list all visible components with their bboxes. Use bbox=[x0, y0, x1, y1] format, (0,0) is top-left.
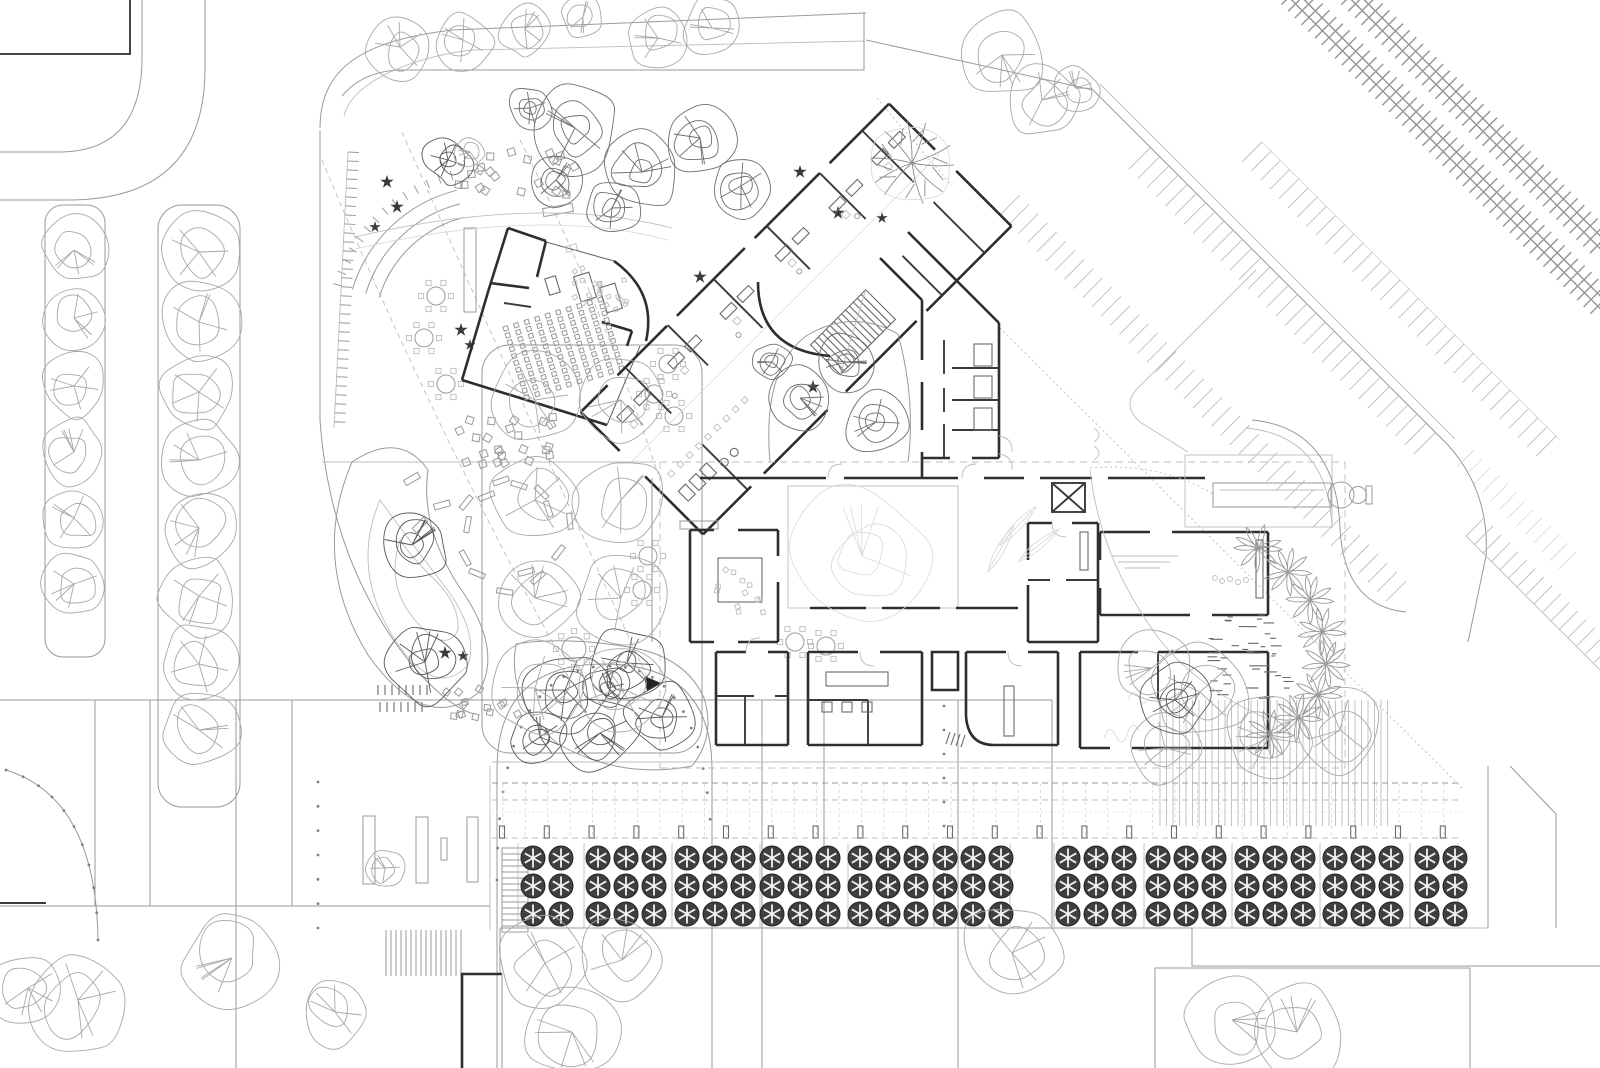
orchard-tree bbox=[549, 874, 573, 898]
orchard-tree bbox=[586, 874, 610, 898]
orchard-tree bbox=[989, 846, 1013, 870]
seat bbox=[558, 317, 563, 322]
seat bbox=[604, 317, 609, 322]
tree-symbol bbox=[43, 491, 103, 548]
orchard-tree bbox=[1202, 846, 1226, 870]
orchard-tree bbox=[549, 846, 573, 870]
tree-symbol bbox=[384, 513, 446, 578]
table-chair bbox=[436, 394, 441, 399]
table-chair bbox=[414, 348, 419, 353]
orchard-tree bbox=[586, 846, 610, 870]
tree-symbol bbox=[365, 17, 429, 81]
tree-symbol bbox=[1184, 976, 1275, 1064]
seat bbox=[556, 385, 561, 390]
orchard-tree bbox=[1323, 846, 1347, 870]
scattered-chair bbox=[563, 191, 570, 198]
orchard-tree bbox=[1146, 902, 1170, 926]
seat bbox=[503, 326, 508, 331]
bollard-dot bbox=[498, 817, 501, 820]
table-chair bbox=[451, 394, 456, 399]
hatched-band bbox=[386, 930, 461, 976]
seat bbox=[518, 374, 523, 379]
seat bbox=[564, 375, 569, 380]
tree-symbol bbox=[509, 88, 552, 130]
seat bbox=[532, 347, 537, 352]
tree-symbol bbox=[181, 914, 280, 1010]
orchard-tree bbox=[549, 902, 573, 926]
scattered-chair bbox=[723, 567, 729, 573]
table-chair bbox=[653, 540, 658, 545]
scattered-chair bbox=[572, 295, 577, 300]
bench bbox=[478, 491, 495, 501]
tree-strips-layer bbox=[45, 205, 702, 807]
orchard-tree bbox=[876, 874, 900, 898]
orchard-tree bbox=[521, 846, 545, 870]
scattered-chair bbox=[507, 148, 516, 157]
seat bbox=[606, 324, 611, 329]
tree-symbol bbox=[43, 351, 104, 419]
bollard-dot bbox=[5, 769, 8, 772]
orchard-tree bbox=[989, 874, 1013, 898]
tick-marks bbox=[1242, 142, 1556, 456]
seat bbox=[615, 352, 620, 357]
seat bbox=[535, 354, 540, 359]
seat bbox=[522, 388, 527, 393]
bollard-dot bbox=[651, 676, 654, 679]
plant-star bbox=[454, 323, 467, 336]
orchard-tree bbox=[1291, 846, 1315, 870]
bollard-dot bbox=[663, 685, 666, 688]
seat bbox=[608, 369, 613, 374]
round-table bbox=[786, 633, 804, 651]
tree-symbol bbox=[560, 699, 642, 772]
seat bbox=[537, 323, 542, 328]
orchard-tree bbox=[1084, 902, 1108, 926]
seat bbox=[530, 340, 535, 345]
tree-symbol bbox=[1286, 576, 1334, 624]
table-chair bbox=[630, 553, 635, 558]
bollard-dot bbox=[51, 796, 54, 799]
seat bbox=[560, 323, 565, 328]
seat bbox=[566, 382, 571, 387]
bench bbox=[552, 545, 566, 561]
seat bbox=[516, 329, 521, 334]
seat bbox=[570, 320, 575, 325]
table-chair bbox=[428, 381, 433, 386]
seat bbox=[566, 344, 571, 349]
round-table bbox=[633, 581, 651, 599]
orchard-tree bbox=[1379, 902, 1403, 926]
tree-symbol bbox=[1140, 662, 1211, 734]
orchard-tree bbox=[933, 846, 957, 870]
bollard-dot bbox=[696, 746, 699, 749]
seat bbox=[556, 310, 561, 315]
scattered-chair bbox=[586, 293, 591, 298]
table-chair bbox=[647, 600, 652, 605]
table-chair bbox=[429, 322, 434, 327]
scattered-chair bbox=[580, 266, 585, 271]
table-chair bbox=[418, 293, 423, 298]
orchard-tree bbox=[703, 874, 727, 898]
orchard-tree bbox=[816, 902, 840, 926]
seat bbox=[579, 310, 584, 315]
tree-symbol bbox=[511, 712, 567, 763]
rock-hatch bbox=[1207, 615, 1294, 698]
tree-symbol bbox=[604, 129, 674, 206]
orchard-tree bbox=[788, 874, 812, 898]
orchard-tree bbox=[675, 874, 699, 898]
seat bbox=[570, 358, 575, 363]
orchard-tree bbox=[848, 902, 872, 926]
seat bbox=[532, 384, 537, 389]
seat bbox=[514, 322, 519, 327]
seat bbox=[600, 341, 605, 346]
orchard-tree bbox=[816, 874, 840, 898]
railway-layer bbox=[1281, 0, 1600, 314]
orchard-tree bbox=[1351, 874, 1375, 898]
seat bbox=[606, 362, 611, 367]
rail-line bbox=[1295, 0, 1600, 305]
scattered-chair bbox=[519, 445, 528, 454]
table-chair bbox=[785, 626, 790, 631]
tree-symbol bbox=[162, 211, 240, 291]
tree-symbol bbox=[572, 463, 663, 543]
bollard-dot bbox=[682, 710, 685, 713]
orchard-tree bbox=[1084, 874, 1108, 898]
pergola-orchard-layer bbox=[492, 783, 1467, 928]
table-chair bbox=[571, 628, 576, 633]
seat bbox=[547, 320, 552, 325]
seat bbox=[589, 307, 594, 312]
scattered-chair bbox=[465, 416, 474, 425]
orchard-tree bbox=[1202, 874, 1226, 898]
seat bbox=[551, 334, 556, 339]
table-chair bbox=[831, 656, 836, 661]
seat bbox=[554, 378, 559, 383]
seat bbox=[589, 345, 594, 350]
scattered-chair bbox=[517, 187, 525, 195]
plant-star bbox=[390, 200, 403, 213]
tree-symbol bbox=[306, 980, 366, 1049]
tree-symbol bbox=[1302, 641, 1350, 688]
bollard-dot bbox=[317, 927, 320, 930]
tree-symbol bbox=[623, 681, 695, 750]
tree-symbol bbox=[870, 121, 954, 203]
tree-symbol bbox=[159, 356, 232, 430]
orchard-tree bbox=[876, 902, 900, 926]
seat bbox=[602, 348, 607, 353]
tree-symbol bbox=[525, 987, 622, 1068]
tree-symbol bbox=[1265, 549, 1312, 596]
tree-symbol bbox=[422, 138, 474, 186]
seat bbox=[535, 391, 540, 396]
bollard-dot bbox=[943, 825, 946, 828]
table-chair bbox=[436, 368, 441, 373]
seat bbox=[553, 340, 558, 345]
orchard-tree bbox=[1235, 846, 1259, 870]
table-chair bbox=[838, 643, 843, 648]
tree-symbol bbox=[683, 0, 739, 54]
parking-stalls-layer bbox=[1000, 142, 1600, 670]
tick-marks bbox=[1129, 148, 1435, 454]
bollard-dot bbox=[37, 784, 40, 787]
plant-star bbox=[380, 175, 393, 188]
orchard-tree bbox=[1174, 902, 1198, 926]
seat bbox=[528, 371, 533, 376]
bollard-dot bbox=[63, 809, 66, 812]
scattered-chair bbox=[597, 291, 602, 296]
seat bbox=[526, 364, 531, 369]
orchard-tree bbox=[1235, 874, 1259, 898]
tree-symbol bbox=[499, 561, 581, 637]
scattered-chair bbox=[747, 583, 752, 588]
seat bbox=[591, 351, 596, 356]
table-chair bbox=[448, 293, 453, 298]
seat bbox=[509, 346, 514, 351]
seat bbox=[518, 336, 523, 341]
table-chair bbox=[686, 413, 691, 418]
orchard-tree bbox=[586, 902, 610, 926]
orchard-tree bbox=[1056, 846, 1080, 870]
tick-marks bbox=[1457, 450, 1576, 569]
bollard-dot bbox=[943, 777, 946, 780]
orchard-tree bbox=[1263, 902, 1287, 926]
table-chair bbox=[429, 348, 434, 353]
tree-symbol bbox=[365, 850, 405, 886]
tree-symbol bbox=[0, 958, 60, 1024]
orchard-tree bbox=[1379, 874, 1403, 898]
table-chair bbox=[673, 348, 678, 353]
seat bbox=[596, 365, 601, 370]
table-chair bbox=[632, 600, 637, 605]
orchard-tree bbox=[521, 874, 545, 898]
orchard-tree bbox=[1174, 846, 1198, 870]
seat bbox=[572, 365, 577, 370]
orchard-tree bbox=[1235, 902, 1259, 926]
tree-symbol bbox=[789, 484, 932, 621]
bollard-dot bbox=[317, 805, 320, 808]
bollard-dot bbox=[87, 864, 90, 867]
seat bbox=[581, 355, 586, 360]
seat bbox=[556, 347, 561, 352]
bollard-dot bbox=[550, 684, 553, 687]
tree-symbol bbox=[490, 456, 579, 535]
orchard-tree bbox=[1443, 874, 1467, 898]
orchard-tree bbox=[1112, 874, 1136, 898]
seat bbox=[562, 330, 567, 335]
orchard-tree bbox=[731, 874, 755, 898]
tick-marks bbox=[380, 702, 422, 712]
table-chair bbox=[658, 348, 663, 353]
seat bbox=[577, 341, 582, 346]
table-chair bbox=[589, 646, 594, 651]
scattered-chair bbox=[622, 278, 627, 283]
site-plan-canvas bbox=[0, 0, 1600, 1068]
seat bbox=[541, 337, 546, 342]
orchard-tree bbox=[642, 902, 666, 926]
bench bbox=[469, 568, 486, 579]
group bbox=[1014, 528, 1064, 563]
tick-marks bbox=[378, 685, 427, 695]
seat bbox=[537, 361, 542, 366]
tree-symbol bbox=[43, 417, 102, 487]
bollard-dot bbox=[73, 825, 76, 828]
seat bbox=[551, 371, 556, 376]
table-chair bbox=[831, 630, 836, 635]
bollard-dot bbox=[609, 665, 612, 668]
table-chair bbox=[664, 400, 669, 405]
table-chair bbox=[654, 587, 659, 592]
seat bbox=[583, 362, 588, 367]
terrace-arc bbox=[352, 190, 456, 289]
table-chair bbox=[559, 659, 564, 664]
round-table bbox=[427, 287, 445, 305]
seat bbox=[562, 368, 567, 373]
tree-symbol bbox=[582, 918, 662, 1002]
orchard-tree bbox=[788, 846, 812, 870]
rail-line bbox=[1289, 0, 1600, 311]
seat bbox=[583, 324, 588, 329]
seat bbox=[539, 367, 544, 372]
orchard-tree bbox=[1323, 902, 1347, 926]
scattered-chair bbox=[598, 281, 602, 285]
table-chair bbox=[800, 652, 805, 657]
bollard-dot bbox=[22, 775, 25, 778]
scattered-chair bbox=[731, 570, 736, 575]
seat bbox=[549, 364, 554, 369]
orchard-tree bbox=[760, 846, 784, 870]
scattered-chair bbox=[442, 688, 450, 696]
bollard-dot bbox=[496, 847, 499, 850]
orchard-tree bbox=[1202, 902, 1226, 926]
tree-symbol bbox=[532, 156, 583, 207]
plant-star bbox=[693, 270, 706, 283]
scattered-chair bbox=[487, 153, 494, 160]
scattered-chair bbox=[606, 294, 611, 299]
seat bbox=[608, 331, 613, 336]
tree-symbol bbox=[1227, 697, 1312, 779]
tree-symbol bbox=[752, 344, 792, 379]
tree-symbol bbox=[499, 915, 587, 1008]
bollard-dot bbox=[81, 843, 84, 846]
table-chair bbox=[441, 306, 446, 311]
scattered-chair bbox=[580, 278, 584, 282]
seat bbox=[543, 344, 548, 349]
tick-marks bbox=[334, 152, 359, 422]
table-chair bbox=[406, 335, 411, 340]
scattered-chair bbox=[455, 426, 464, 435]
bollard-dot bbox=[512, 745, 515, 748]
tree-symbol bbox=[1246, 710, 1294, 758]
seat bbox=[547, 357, 552, 362]
seat bbox=[596, 328, 601, 333]
tree-symbol bbox=[163, 693, 242, 764]
table-chair bbox=[441, 280, 446, 285]
bollard-dot bbox=[95, 911, 98, 914]
rail-ties bbox=[1341, 0, 1600, 253]
orchard-tree bbox=[1379, 846, 1403, 870]
table-chair bbox=[666, 391, 671, 396]
seat bbox=[568, 313, 573, 318]
tree-symbol bbox=[163, 625, 239, 700]
orchard-tree bbox=[904, 846, 928, 870]
table-chair bbox=[636, 391, 641, 396]
bollard-dot bbox=[943, 729, 946, 732]
bollard-dot bbox=[496, 879, 499, 882]
bollard-dot bbox=[943, 801, 946, 804]
bollard-dot bbox=[506, 766, 509, 769]
bench bbox=[464, 516, 472, 533]
seat bbox=[612, 345, 617, 350]
seat bbox=[505, 333, 510, 338]
scattered-chair bbox=[613, 307, 618, 312]
table-chair bbox=[816, 656, 821, 661]
orchard-tree bbox=[614, 902, 638, 926]
tree-symbol bbox=[1255, 983, 1341, 1068]
scattered-chair bbox=[513, 710, 521, 718]
bollard-dot bbox=[317, 854, 320, 857]
bollard-dot bbox=[709, 818, 712, 821]
round-table bbox=[639, 547, 657, 565]
seat bbox=[528, 333, 533, 338]
bollard-dot bbox=[706, 791, 709, 794]
round-table bbox=[415, 329, 433, 347]
orchard-tree bbox=[1291, 874, 1315, 898]
bollard-dot bbox=[943, 753, 946, 756]
seat bbox=[598, 334, 603, 339]
orchard-tree bbox=[1351, 902, 1375, 926]
table-chair bbox=[638, 540, 643, 545]
orchard-tree bbox=[1056, 874, 1080, 898]
rail-ties bbox=[1281, 0, 1600, 314]
scattered-chair bbox=[479, 449, 488, 458]
table-chair bbox=[451, 368, 456, 373]
table-chair bbox=[673, 374, 678, 379]
tree-symbol bbox=[43, 289, 106, 351]
bollard-dot bbox=[538, 695, 541, 698]
seat bbox=[524, 357, 529, 362]
tree-symbol bbox=[561, 0, 601, 38]
tree-symbol bbox=[846, 389, 909, 451]
table-chair bbox=[458, 381, 463, 386]
tree-symbol bbox=[1274, 695, 1322, 742]
table-chair bbox=[414, 322, 419, 327]
table-chair bbox=[426, 280, 431, 285]
seat bbox=[579, 348, 584, 353]
scattered-chair bbox=[570, 162, 580, 172]
orchard-tree bbox=[1112, 846, 1136, 870]
scattered-chair bbox=[472, 434, 480, 442]
seat bbox=[549, 327, 554, 332]
seat bbox=[524, 319, 529, 324]
orchard-tree bbox=[848, 846, 872, 870]
seat bbox=[581, 317, 586, 322]
table-chair bbox=[632, 574, 637, 579]
orchard-tree bbox=[1174, 874, 1198, 898]
bollard-dot bbox=[624, 666, 627, 669]
orchard-tree bbox=[703, 902, 727, 926]
seat bbox=[520, 343, 525, 348]
table-chair bbox=[584, 634, 589, 639]
bollard-dot bbox=[317, 829, 320, 832]
group bbox=[981, 525, 1021, 572]
table-chair bbox=[679, 400, 684, 405]
orchard-tree bbox=[876, 846, 900, 870]
bollard-dot bbox=[317, 781, 320, 784]
table-chair bbox=[559, 634, 564, 639]
table-chair bbox=[436, 335, 441, 340]
orchard-tree bbox=[904, 874, 928, 898]
